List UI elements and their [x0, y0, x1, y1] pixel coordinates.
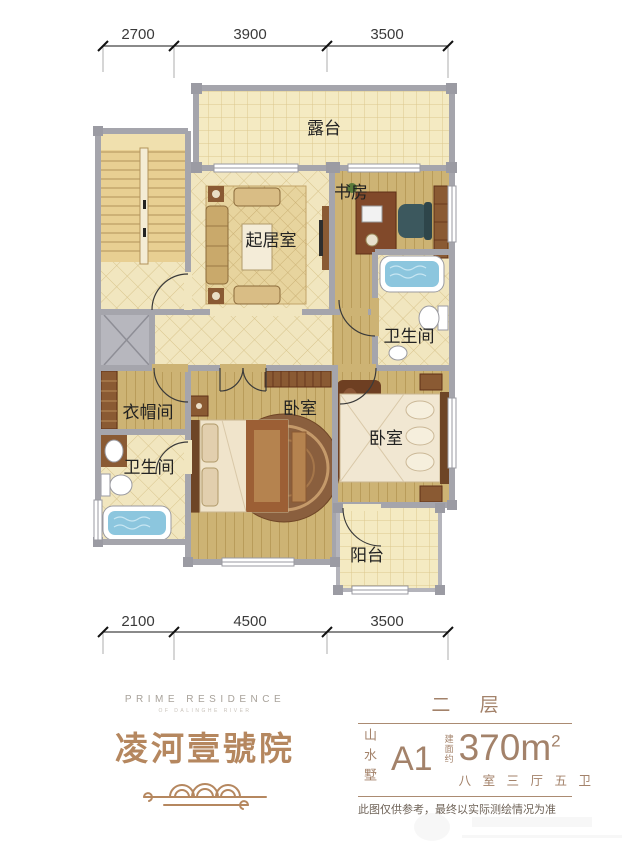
watermark [402, 809, 632, 849]
layout-spec: 八 室 三 厅 五 卫 [459, 770, 595, 789]
branding-block: PRIME RESIDENCE OF DALINGHE RIVER 凌河壹號院 [0, 672, 640, 853]
tv-console [322, 206, 330, 270]
logo-english-title: PRIME RESIDENCE [80, 694, 330, 705]
pillow [202, 468, 218, 506]
brand-logo: PRIME RESIDENCE OF DALINGHE RIVER 凌河壹號院 [80, 694, 330, 819]
logo-chinese-name: 凌河壹號院 [80, 722, 330, 770]
area-value: 370m2 [459, 729, 595, 766]
dimension-top [98, 41, 453, 78]
nightstand [420, 374, 442, 390]
sofa-loveseat [234, 188, 280, 206]
room-label-bathroom-bottom: 卫生间 [124, 458, 175, 477]
dim-bottom-3: 3500 [370, 613, 403, 630]
panel-row: 山水墅 A1 建面约 370m2 八 室 三 厅 五 卫 [358, 728, 572, 790]
floorplan-drawing: 2700 3900 3500 [0, 0, 640, 672]
area-column: 370m2 八 室 三 厅 五 卫 [459, 729, 595, 789]
closet [101, 371, 117, 429]
stair-landing [101, 262, 188, 312]
dim-top-3: 3500 [370, 26, 403, 43]
panel-divider [358, 723, 572, 724]
sink [105, 440, 123, 462]
sofa-loveseat [234, 286, 280, 304]
pillow [202, 424, 218, 462]
cloud-motif-icon [130, 770, 280, 814]
dim-top-1: 2700 [121, 26, 154, 43]
pillow [406, 401, 434, 419]
floorplan-page: 2700 3900 3500 [0, 0, 640, 853]
logo-english-subtitle: OF DALINGHE RIVER [80, 708, 330, 714]
sink [389, 346, 407, 360]
room-label-study: 书房 [334, 183, 368, 202]
laptop [362, 206, 382, 222]
room-label-living: 起居室 [246, 231, 297, 250]
area-superscript: 2 [551, 732, 560, 751]
toilet [101, 474, 110, 496]
area-number: 370m [459, 727, 552, 768]
pillow [406, 427, 434, 445]
panel-divider [358, 796, 572, 797]
series-name: 山水墅 [360, 728, 379, 790]
desk-chair [398, 204, 428, 238]
info-panel: 二 层 山水墅 A1 建面约 370m2 八 室 三 厅 五 卫 此图仅供参考，… [358, 690, 572, 817]
area-prefix: 建面约 [443, 734, 456, 770]
unit-code: A1 [391, 740, 433, 779]
room-label-balcony: 阳台 [350, 546, 384, 565]
room-label-bathroom-top: 卫生间 [384, 327, 435, 346]
cloakroom-furniture [101, 371, 117, 429]
floor-label: 二 层 [358, 690, 572, 717]
dim-bottom-1: 2100 [121, 613, 154, 630]
sofa-main [206, 206, 228, 284]
room-label-terrace: 露台 [307, 119, 341, 138]
room-label-cloakroom: 衣帽间 [123, 403, 174, 422]
room-label-second-bedroom: 卧室 [369, 429, 403, 448]
room-label-master-bedroom: 卧室 [283, 399, 317, 418]
dim-top-2: 3900 [233, 26, 266, 43]
bench [292, 432, 306, 502]
tv [319, 220, 323, 256]
dim-bottom-2: 4500 [233, 613, 266, 630]
nightstand [420, 486, 442, 502]
pillow [406, 453, 434, 471]
dimension-bottom [98, 627, 453, 660]
